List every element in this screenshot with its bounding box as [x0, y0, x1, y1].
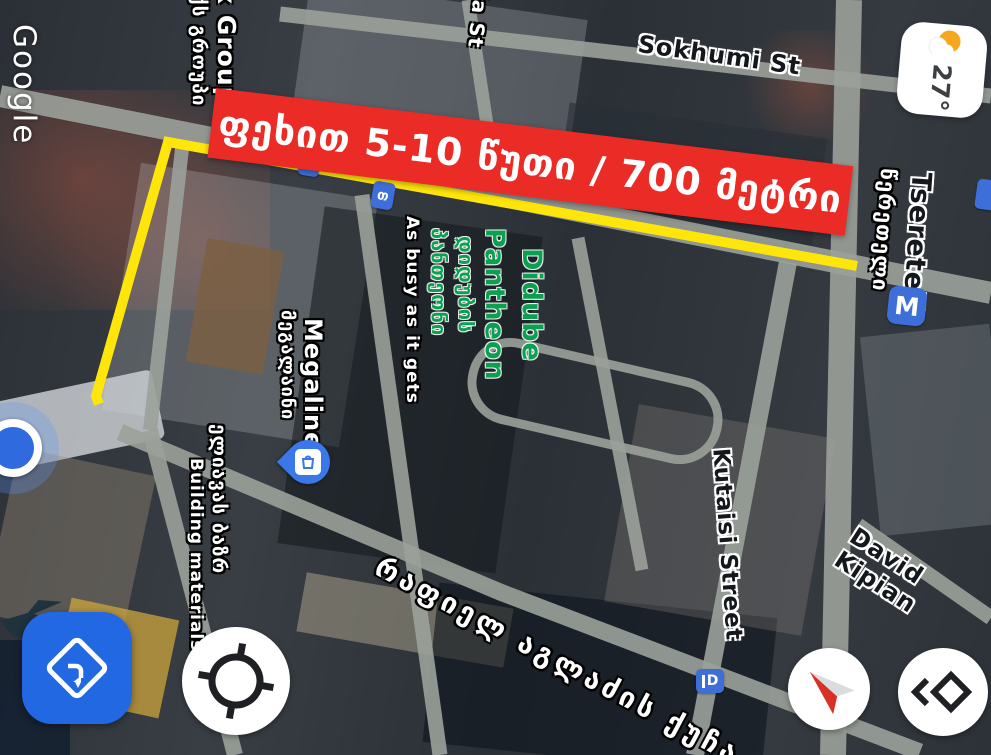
- shield-letter: D: [707, 673, 719, 689]
- route-diamond-icon: [910, 659, 976, 725]
- poi-label-megaline-ka[interactable]: მეგალაინი: [277, 310, 298, 420]
- poi-label-didube-ka-2[interactable]: პანთეონი: [427, 228, 451, 336]
- poi-label-busy-note: As busy as it gets: [402, 216, 422, 404]
- navigate-button[interactable]: [898, 648, 988, 736]
- weather-widget[interactable]: 27°: [895, 20, 989, 119]
- temperature-value: 27°: [924, 63, 957, 113]
- google-maps-satellite-view[interactable]: Google x Group ქს გროუპი ia St Sokhumi S…: [0, 0, 991, 755]
- road-shield-badge: D: [696, 669, 724, 693]
- poi-label-didube-en-1[interactable]: Didube: [516, 248, 547, 362]
- directions-diamond-icon: [42, 633, 112, 703]
- partly-cloudy-icon: [923, 27, 966, 64]
- poi-label-partner-group-ka: ქს გროუპი: [188, 0, 210, 106]
- google-watermark: Google: [6, 24, 42, 145]
- poi-label-didube-en-2[interactable]: Pantheon: [479, 228, 510, 381]
- shield-bar: [702, 675, 705, 688]
- compass-button[interactable]: [788, 648, 870, 730]
- poi-label-megaline-en[interactable]: Megaline: [299, 318, 327, 449]
- metro-station-badge[interactable]: M: [886, 285, 928, 327]
- crosshair-icon: [187, 632, 284, 729]
- shopping-bag-icon: [295, 449, 321, 475]
- transit-badge-b[interactable]: თ: [370, 180, 396, 210]
- poi-label-building-materials: Building materials: [186, 458, 206, 651]
- directions-button[interactable]: [22, 612, 132, 724]
- my-location-button[interactable]: [182, 627, 290, 735]
- poi-label-didube-ka-1[interactable]: დიდუბის: [454, 236, 478, 333]
- poi-label-eliava-ka: ელიავას ბაზრ: [208, 424, 230, 574]
- transit-badge-edge[interactable]: [974, 178, 991, 211]
